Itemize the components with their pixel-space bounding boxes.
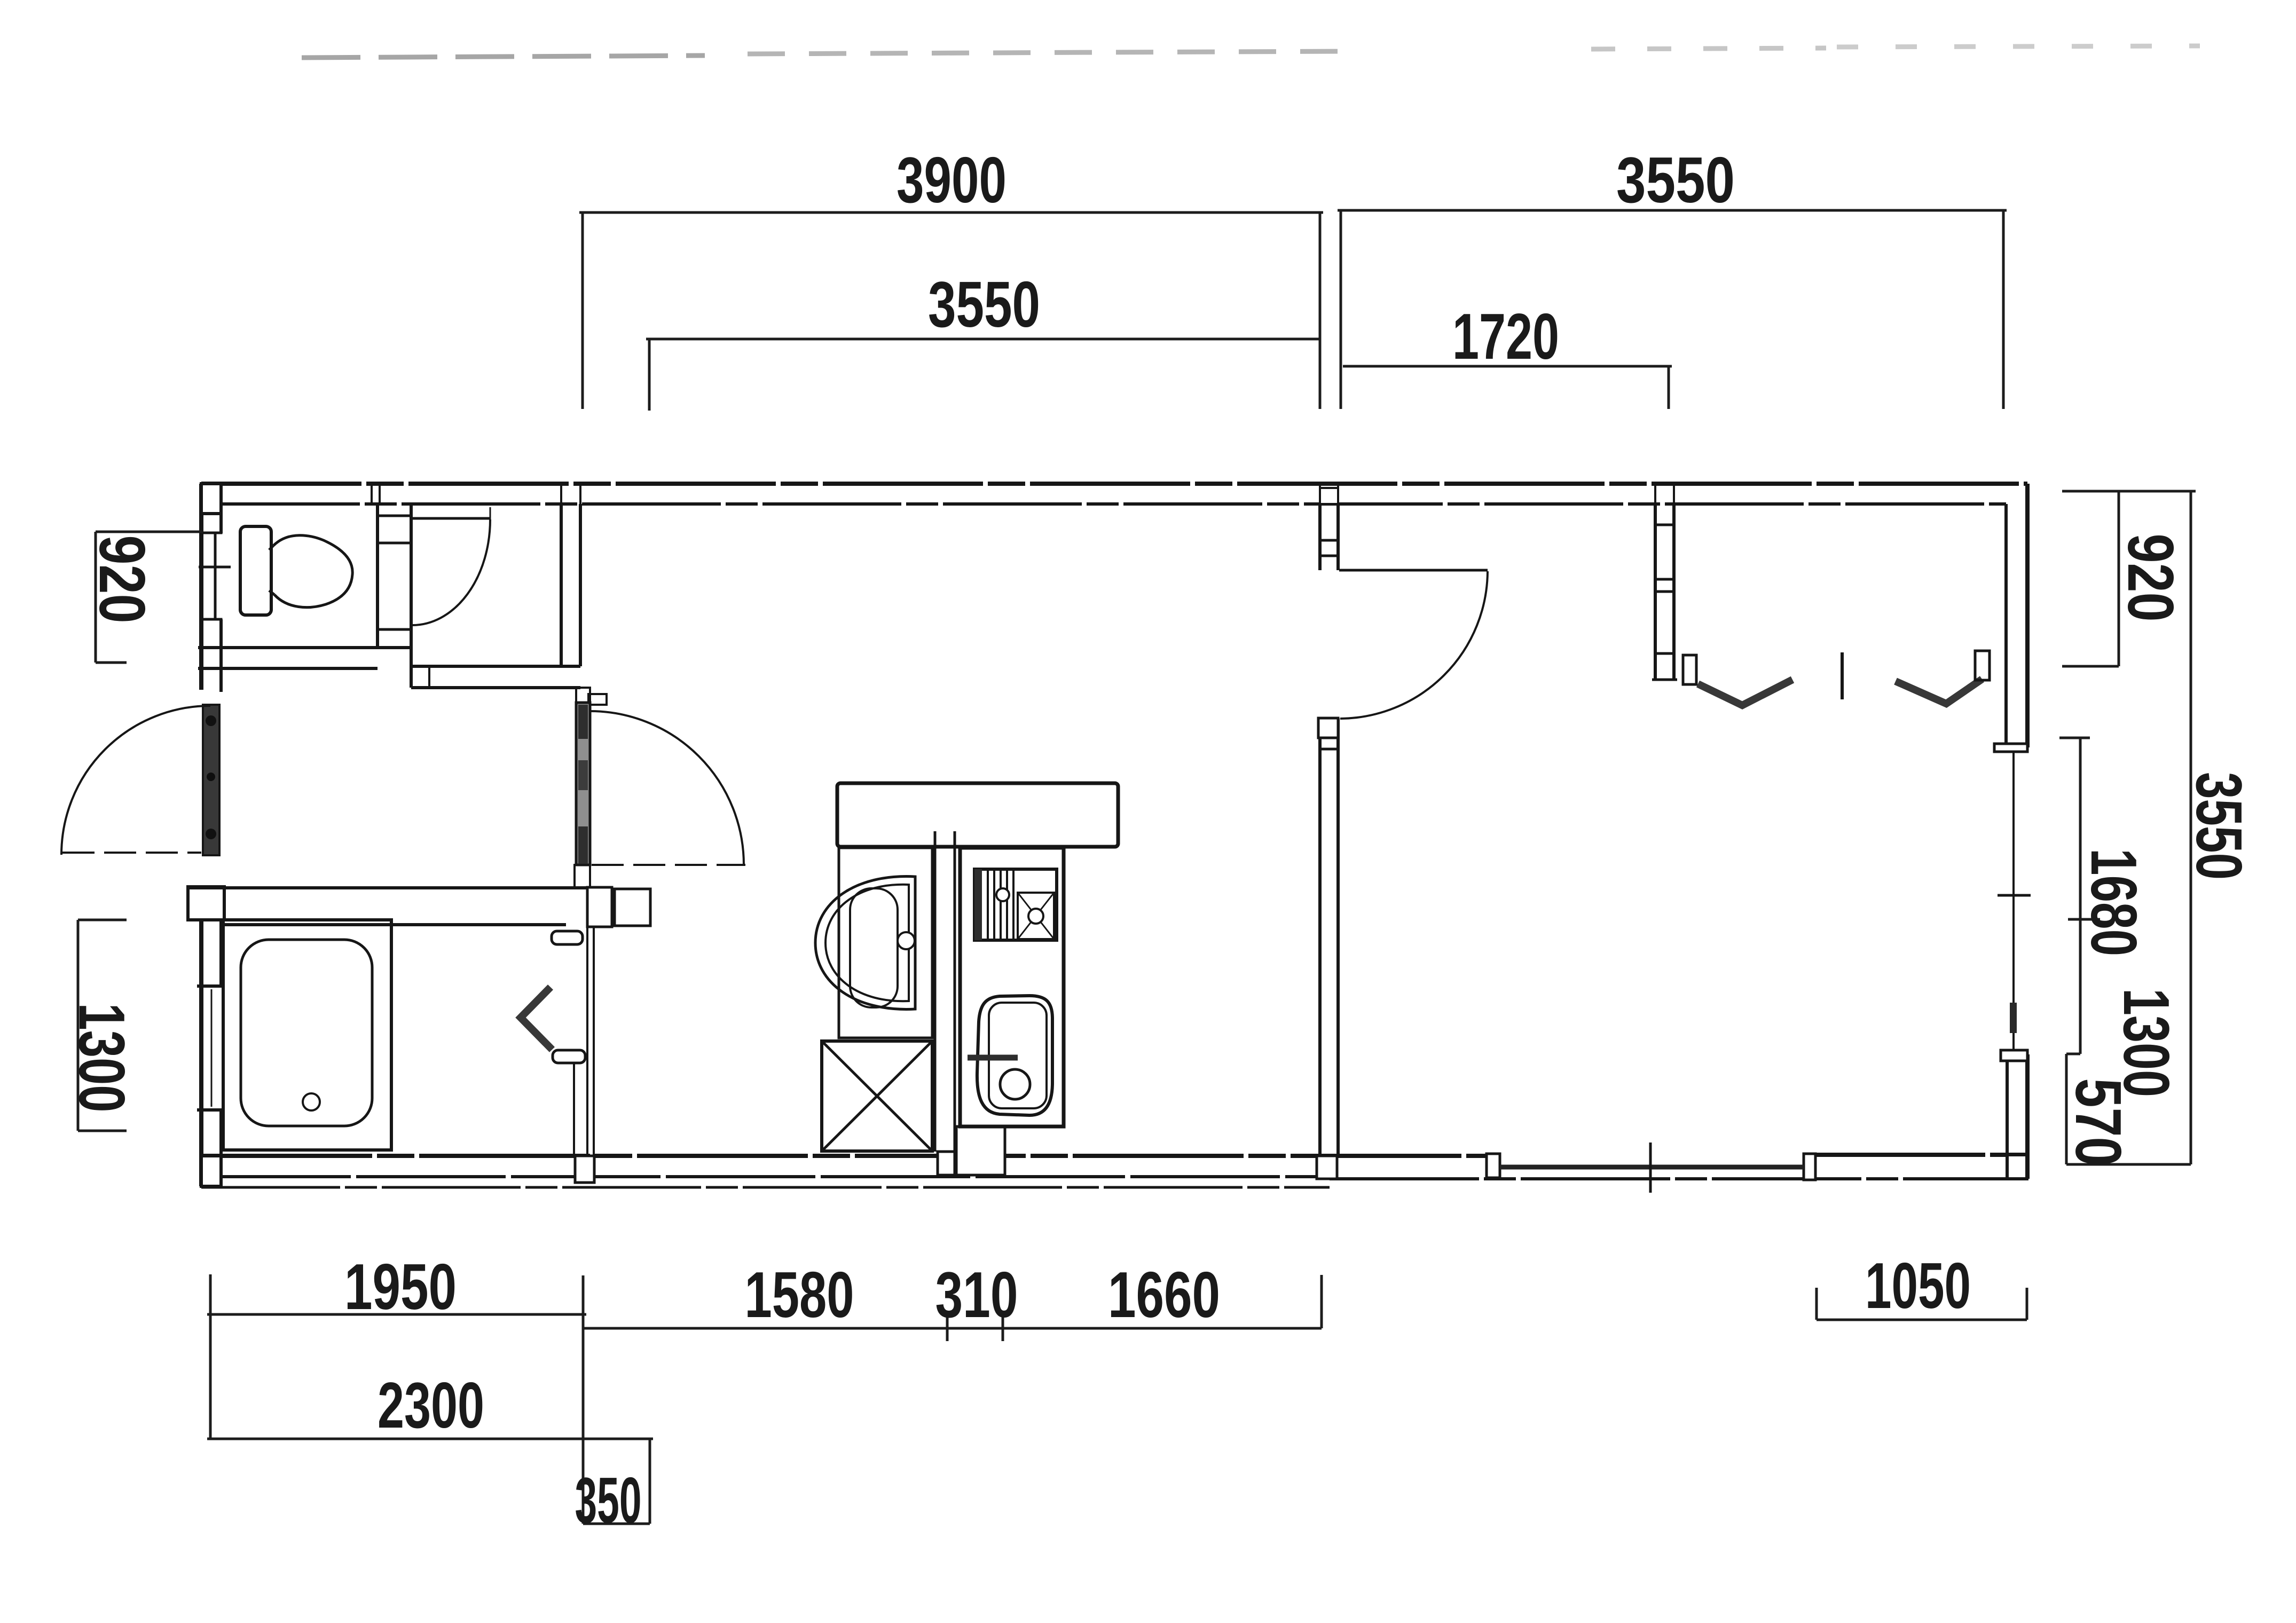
svg-text:3550: 3550	[928, 268, 1040, 341]
svg-text:1680: 1680	[2078, 848, 2150, 956]
svg-text:3550: 3550	[1616, 144, 1735, 216]
svg-text:1950: 1950	[344, 1250, 457, 1323]
svg-text:1720: 1720	[1452, 300, 1559, 373]
svg-text:350: 350	[575, 1464, 642, 1537]
svg-text:570: 570	[2062, 1078, 2135, 1167]
svg-text:1300: 1300	[66, 1003, 138, 1113]
svg-text:2300: 2300	[378, 1369, 484, 1441]
svg-text:3900: 3900	[897, 144, 1007, 216]
svg-text:1050: 1050	[1865, 1249, 1971, 1322]
svg-text:920: 920	[86, 535, 159, 624]
svg-text:1660: 1660	[1108, 1258, 1220, 1331]
svg-text:3550: 3550	[2183, 772, 2255, 880]
svg-text:310: 310	[935, 1258, 1018, 1331]
svg-text:920: 920	[2114, 534, 2187, 622]
svg-text:1580: 1580	[745, 1258, 854, 1331]
